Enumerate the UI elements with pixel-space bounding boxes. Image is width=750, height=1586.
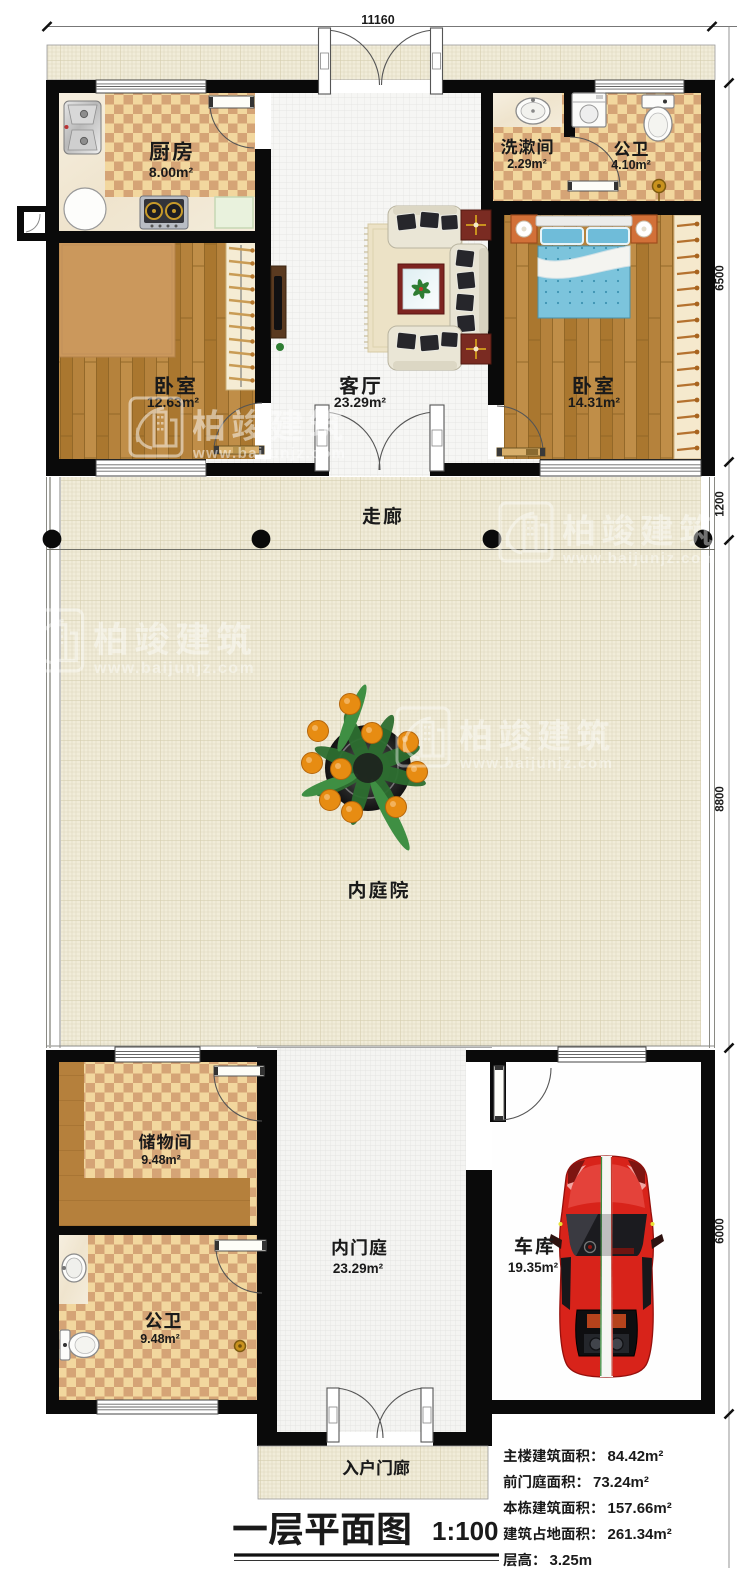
svg-text:12.63m²: 12.63m²: [147, 394, 199, 410]
svg-text:11160: 11160: [361, 13, 394, 27]
svg-text:14.31m²: 14.31m²: [568, 394, 620, 410]
svg-text:261.34m²: 261.34m²: [608, 1526, 672, 1543]
svg-text:1200: 1200: [715, 491, 727, 517]
svg-text:www.baijunjz.com: www.baijunjz.com: [93, 660, 255, 677]
svg-text:9.48m²: 9.48m²: [141, 1153, 181, 1167]
svg-text:6000: 6000: [715, 1218, 727, 1244]
svg-text:23.29m²: 23.29m²: [333, 1261, 384, 1276]
svg-text:4.10m²: 4.10m²: [611, 158, 651, 172]
svg-text:84.42m²: 84.42m²: [608, 1448, 664, 1465]
svg-text:23.29m²: 23.29m²: [334, 394, 386, 410]
svg-text:1:100: 1:100: [432, 1516, 499, 1546]
svg-text:73.24m²: 73.24m²: [593, 1474, 649, 1491]
svg-text:www.baijunjz.com: www.baijunjz.com: [459, 755, 613, 772]
svg-text:19.35m²: 19.35m²: [508, 1260, 559, 1275]
svg-text:3.25m: 3.25m: [550, 1552, 593, 1569]
svg-text:www.baijunjz.com: www.baijunjz.com: [192, 445, 346, 462]
svg-text:2.29m²: 2.29m²: [507, 157, 547, 171]
svg-text:9.48m²: 9.48m²: [140, 1332, 180, 1346]
svg-text:8800: 8800: [715, 786, 727, 812]
svg-text:www.baijunjz.com: www.baijunjz.com: [562, 550, 716, 567]
svg-text:8.00m²: 8.00m²: [149, 164, 194, 180]
svg-text:157.66m²: 157.66m²: [608, 1500, 672, 1517]
svg-text:6500: 6500: [715, 265, 727, 291]
